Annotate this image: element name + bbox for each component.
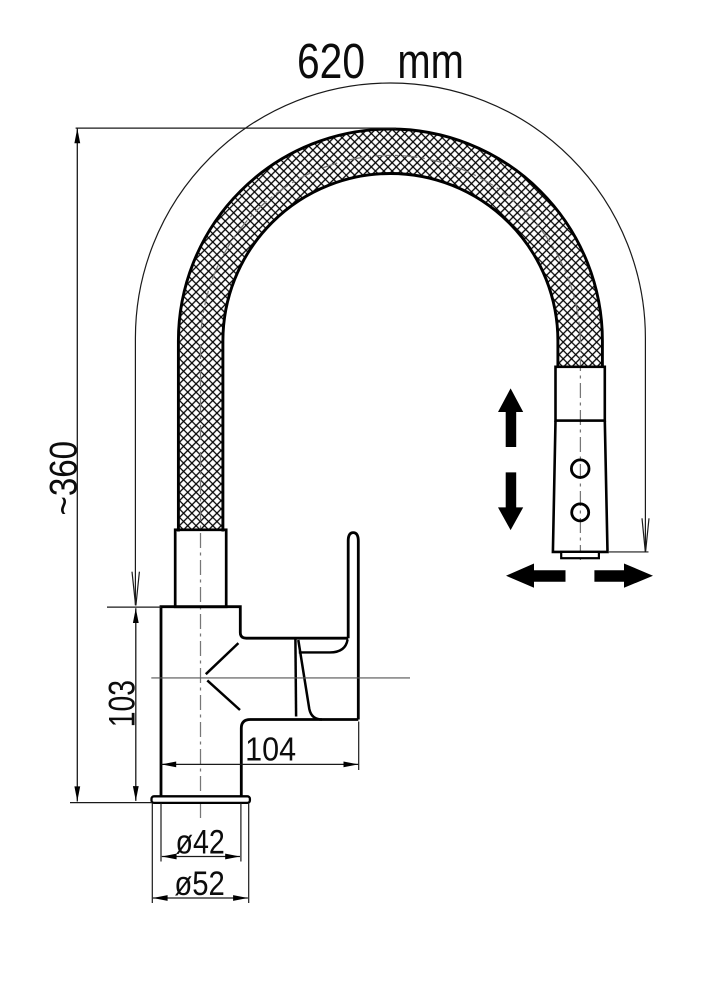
svg-text:620: 620 <box>297 35 365 89</box>
svg-text:~360: ~360 <box>43 441 86 516</box>
svg-text:103: 103 <box>102 680 143 727</box>
svg-text:ø52: ø52 <box>174 865 225 903</box>
svg-text:104: 104 <box>245 731 296 768</box>
svg-text:mm: mm <box>397 35 464 89</box>
svg-text:ø42: ø42 <box>176 824 225 862</box>
